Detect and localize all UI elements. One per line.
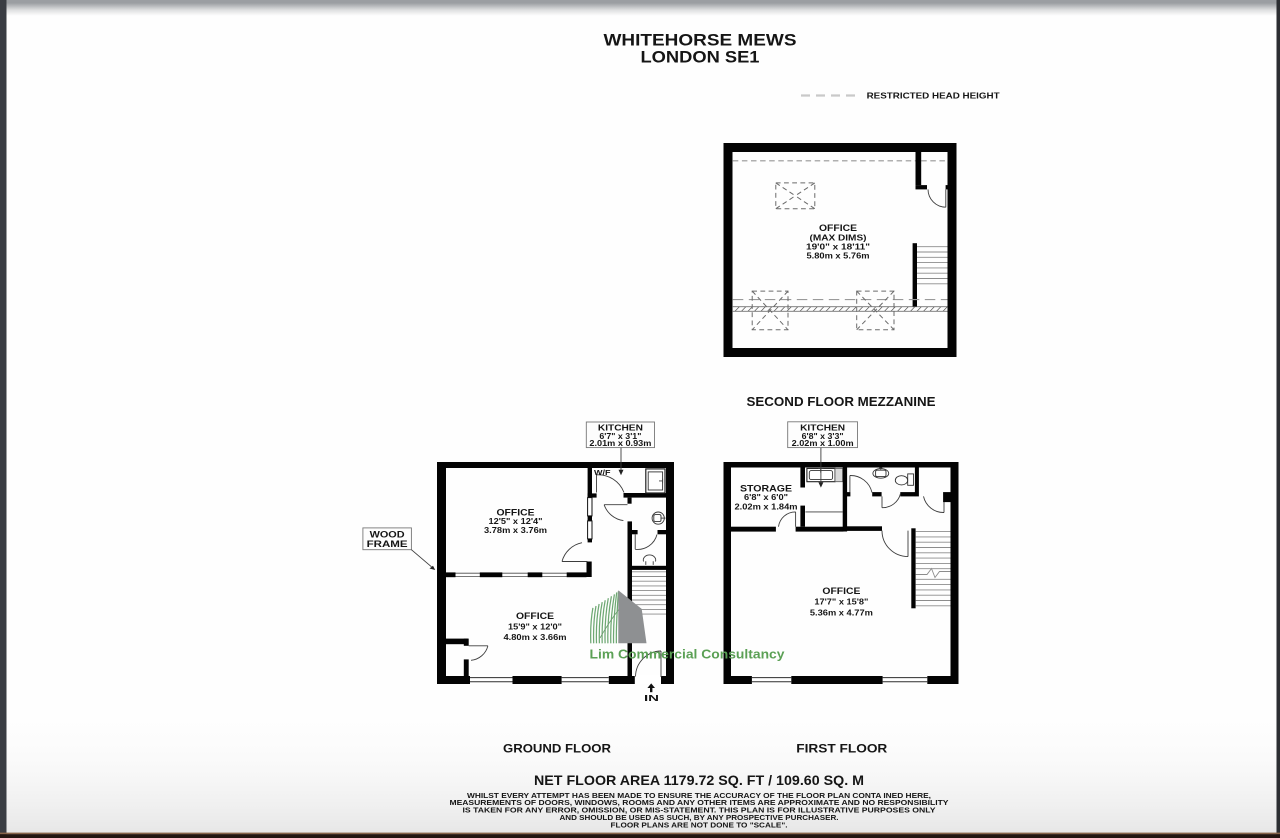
svg-text:GROUND FLOOR: GROUND FLOOR: [503, 742, 611, 756]
svg-text:IN: IN: [644, 693, 659, 703]
svg-text:NET FLOOR AREA 1179.72 SQ. FT: NET FLOOR AREA 1179.72 SQ. FT / 109.60 S…: [534, 772, 864, 788]
svg-text:3.78m x 3.76m: 3.78m x 3.76m: [484, 526, 547, 535]
svg-text:FRAME: FRAME: [367, 539, 408, 549]
svg-text:4.80m x 3.66m: 4.80m x 3.66m: [504, 633, 567, 642]
svg-text:5.36m x 4.77m: 5.36m x 4.77m: [810, 608, 873, 617]
svg-text:FLOOR PLANS ARE NOT DONE TO "S: FLOOR PLANS ARE NOT DONE TO "SCALE".: [611, 820, 788, 829]
svg-text:15'9" x 12'0": 15'9" x 12'0": [508, 622, 562, 631]
svg-text:OFFICE: OFFICE: [822, 586, 860, 596]
svg-text:2.02m x 1.84m: 2.02m x 1.84m: [735, 502, 798, 511]
svg-text:OFFICE: OFFICE: [516, 611, 554, 621]
svg-text:6'8" x 6'0": 6'8" x 6'0": [744, 493, 788, 502]
svg-text:LONDON SE1: LONDON SE1: [641, 47, 760, 66]
svg-text:FIRST FLOOR: FIRST FLOOR: [796, 742, 887, 756]
svg-text:SECOND FLOOR MEZZANINE: SECOND FLOOR MEZZANINE: [747, 395, 936, 409]
svg-text:5.80m x 5.76m: 5.80m x 5.76m: [807, 250, 870, 260]
svg-text:12'5" x 12'4": 12'5" x 12'4": [489, 517, 543, 526]
svg-text:W/F: W/F: [594, 468, 611, 477]
svg-text:Lim Commercial Consultancy: Lim Commercial Consultancy: [590, 648, 785, 662]
svg-text:RESTRICTED HEAD HEIGHT: RESTRICTED HEAD HEIGHT: [867, 91, 1000, 100]
svg-text:KITCHEN: KITCHEN: [800, 422, 845, 432]
svg-text:WOOD: WOOD: [370, 530, 406, 540]
svg-text:2.02m x 1.00m: 2.02m x 1.00m: [792, 439, 854, 448]
svg-text:KITCHEN: KITCHEN: [598, 422, 643, 432]
svg-text:17'7" x 15'8": 17'7" x 15'8": [814, 598, 868, 607]
svg-text:2.01m x 0.93m: 2.01m x 0.93m: [589, 439, 651, 448]
svg-text:OFFICE: OFFICE: [497, 508, 535, 518]
